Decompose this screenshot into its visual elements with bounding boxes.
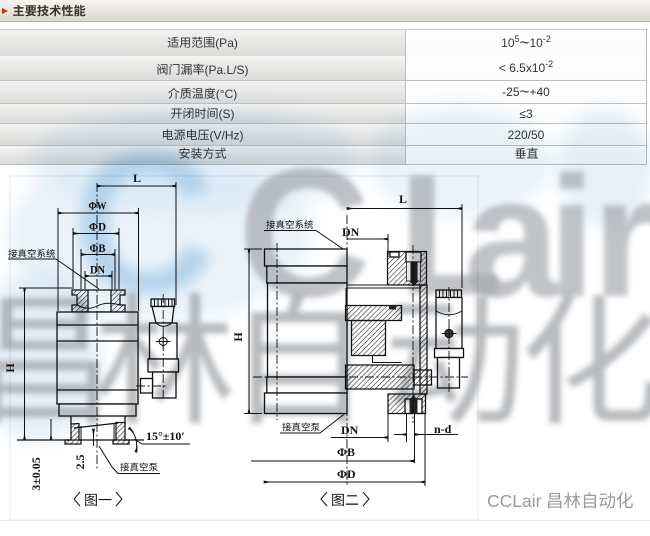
svg-text:DN: DN bbox=[341, 423, 359, 437]
svg-text:n-d: n-d bbox=[434, 422, 452, 436]
svg-text:ΦD: ΦD bbox=[337, 467, 356, 481]
svg-text:ΦB: ΦB bbox=[337, 445, 355, 459]
svg-text:(°C): (°C) bbox=[216, 87, 237, 101]
svg-text:L: L bbox=[399, 192, 407, 206]
svg-text:ΦD: ΦD bbox=[89, 220, 106, 234]
svg-text:ΦW: ΦW bbox=[89, 199, 107, 213]
svg-text:(Pa.L/S): (Pa.L/S) bbox=[205, 63, 249, 77]
svg-text:2.5: 2.5 bbox=[73, 455, 87, 470]
svg-text:H: H bbox=[231, 332, 245, 342]
svg-text:CCLair: CCLair bbox=[487, 491, 542, 511]
svg-text:ΦB: ΦB bbox=[90, 241, 106, 255]
svg-text:DN: DN bbox=[342, 225, 360, 239]
svg-text:(S): (S) bbox=[219, 107, 235, 121]
svg-text:15°±10′: 15°±10′ bbox=[146, 429, 185, 443]
svg-text:3±0.05: 3±0.05 bbox=[29, 457, 43, 491]
svg-text:H: H bbox=[3, 363, 17, 373]
svg-text:DN: DN bbox=[90, 263, 105, 277]
svg-text:(V/Hz): (V/Hz) bbox=[210, 128, 244, 142]
svg-text:(Pa): (Pa) bbox=[215, 36, 238, 50]
svg-text:L: L bbox=[133, 171, 141, 185]
